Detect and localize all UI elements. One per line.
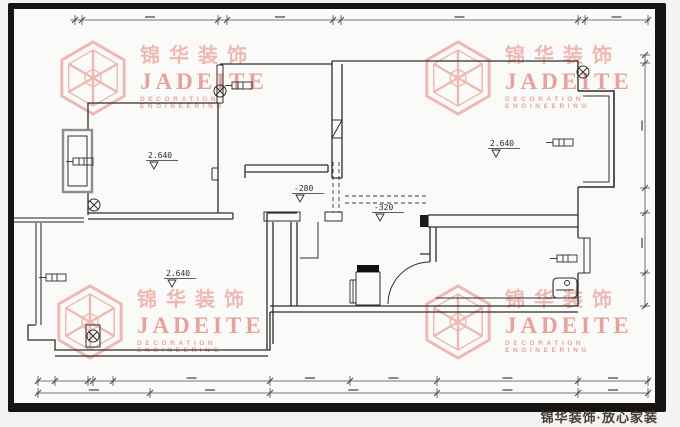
scanned-floorplan-page: 锦华装饰 JADEITE DECORATION ENGINEERING 锦华装饰… (0, 0, 680, 427)
wall-end-solid (420, 215, 428, 227)
pipe-shaft (350, 280, 356, 303)
level-label: -280 (292, 184, 324, 202)
toilet-detail (565, 281, 570, 286)
floor-plan-drawing: 2.6402.6402.640-280-320 (0, 0, 680, 427)
bay-window-left-outer (63, 130, 92, 192)
flue-symbol-icon (577, 66, 589, 78)
electric-symbols-layer (39, 82, 577, 281)
flue-symbol-icon (214, 85, 226, 97)
level-label: -320 (372, 203, 404, 221)
dimension-line-group (35, 376, 651, 386)
level-triangle-icon (150, 162, 158, 169)
electric-panel-icon (550, 255, 577, 262)
level-triangle-icon (168, 280, 176, 287)
level-label: 2.640 (164, 269, 196, 287)
electric-panel-icon (66, 158, 93, 165)
wall-divider-right (428, 215, 578, 227)
door-arc (388, 262, 430, 304)
level-triangle-icon (296, 195, 304, 202)
footer-bar: 锦华装饰·放心家装 (0, 412, 680, 427)
gray-wall-left (14, 218, 84, 325)
level-triangle-icon (492, 150, 500, 157)
electric-panel-icon (546, 139, 573, 146)
level-label: 2.640 (488, 139, 520, 157)
shower-tray (356, 272, 380, 305)
wall-bottom (55, 306, 578, 356)
window-right-lower (578, 238, 590, 273)
flue-symbol-icon (87, 330, 99, 342)
electric-panel-icon (39, 274, 66, 281)
level-value: 2.640 (148, 151, 172, 160)
level-value: -320 (374, 203, 393, 212)
dimension-layer (35, 15, 651, 398)
wall-hall (267, 213, 297, 350)
footer-brand-text: 锦华装饰·放心家装 (541, 407, 658, 426)
wall-mid-room (245, 165, 328, 178)
gray-walls-layer (14, 130, 92, 325)
level-label: 2.640 (146, 151, 178, 169)
walls-layer (28, 61, 614, 356)
level-value: 2.640 (166, 269, 190, 278)
wall-top (220, 61, 578, 64)
flue-symbols-layer (87, 66, 589, 342)
dimension-line-group (640, 52, 650, 309)
kitchen-wall (300, 222, 318, 258)
wall-tl-bl (88, 213, 233, 219)
electric-panel-icon (225, 82, 252, 89)
window-hatch-diagonal (332, 120, 342, 138)
bay-window-right-inner (583, 96, 609, 182)
flue-symbol-icon (88, 199, 100, 211)
dimension-line-group (35, 388, 651, 398)
level-value: 2.640 (490, 139, 514, 148)
wall-notch (212, 168, 218, 180)
level-value: -280 (294, 184, 313, 193)
dimension-line-group (70, 15, 651, 25)
wall-bath (420, 227, 436, 262)
level-triangle-icon (376, 214, 384, 221)
wall-pier (325, 212, 342, 221)
wall-bottom-left (28, 312, 270, 350)
threshold (357, 265, 379, 272)
